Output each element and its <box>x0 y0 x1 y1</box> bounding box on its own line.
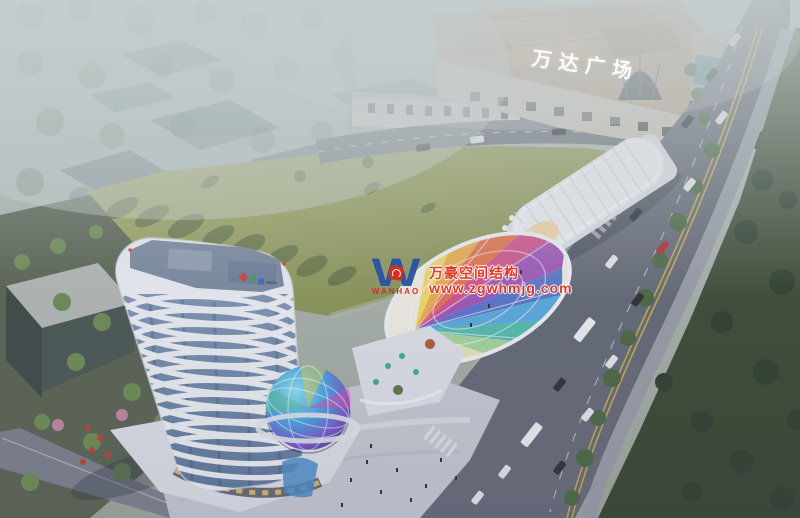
watermark: W WANHAO 万豪空间结构 www.zgwhmjg.com <box>370 255 573 303</box>
watermark-url-text: www.zgwhmjg.com <box>429 281 573 296</box>
watermark-brand-text: 万豪空间结构 <box>429 266 573 281</box>
wanhao-logo-icon: W WANHAO <box>370 255 422 303</box>
logo-red-square-icon <box>388 265 404 281</box>
aerial-rendering: 万达广场 W WANHAO 万豪空间结构 www.zgwhmjg.com <box>0 0 800 518</box>
